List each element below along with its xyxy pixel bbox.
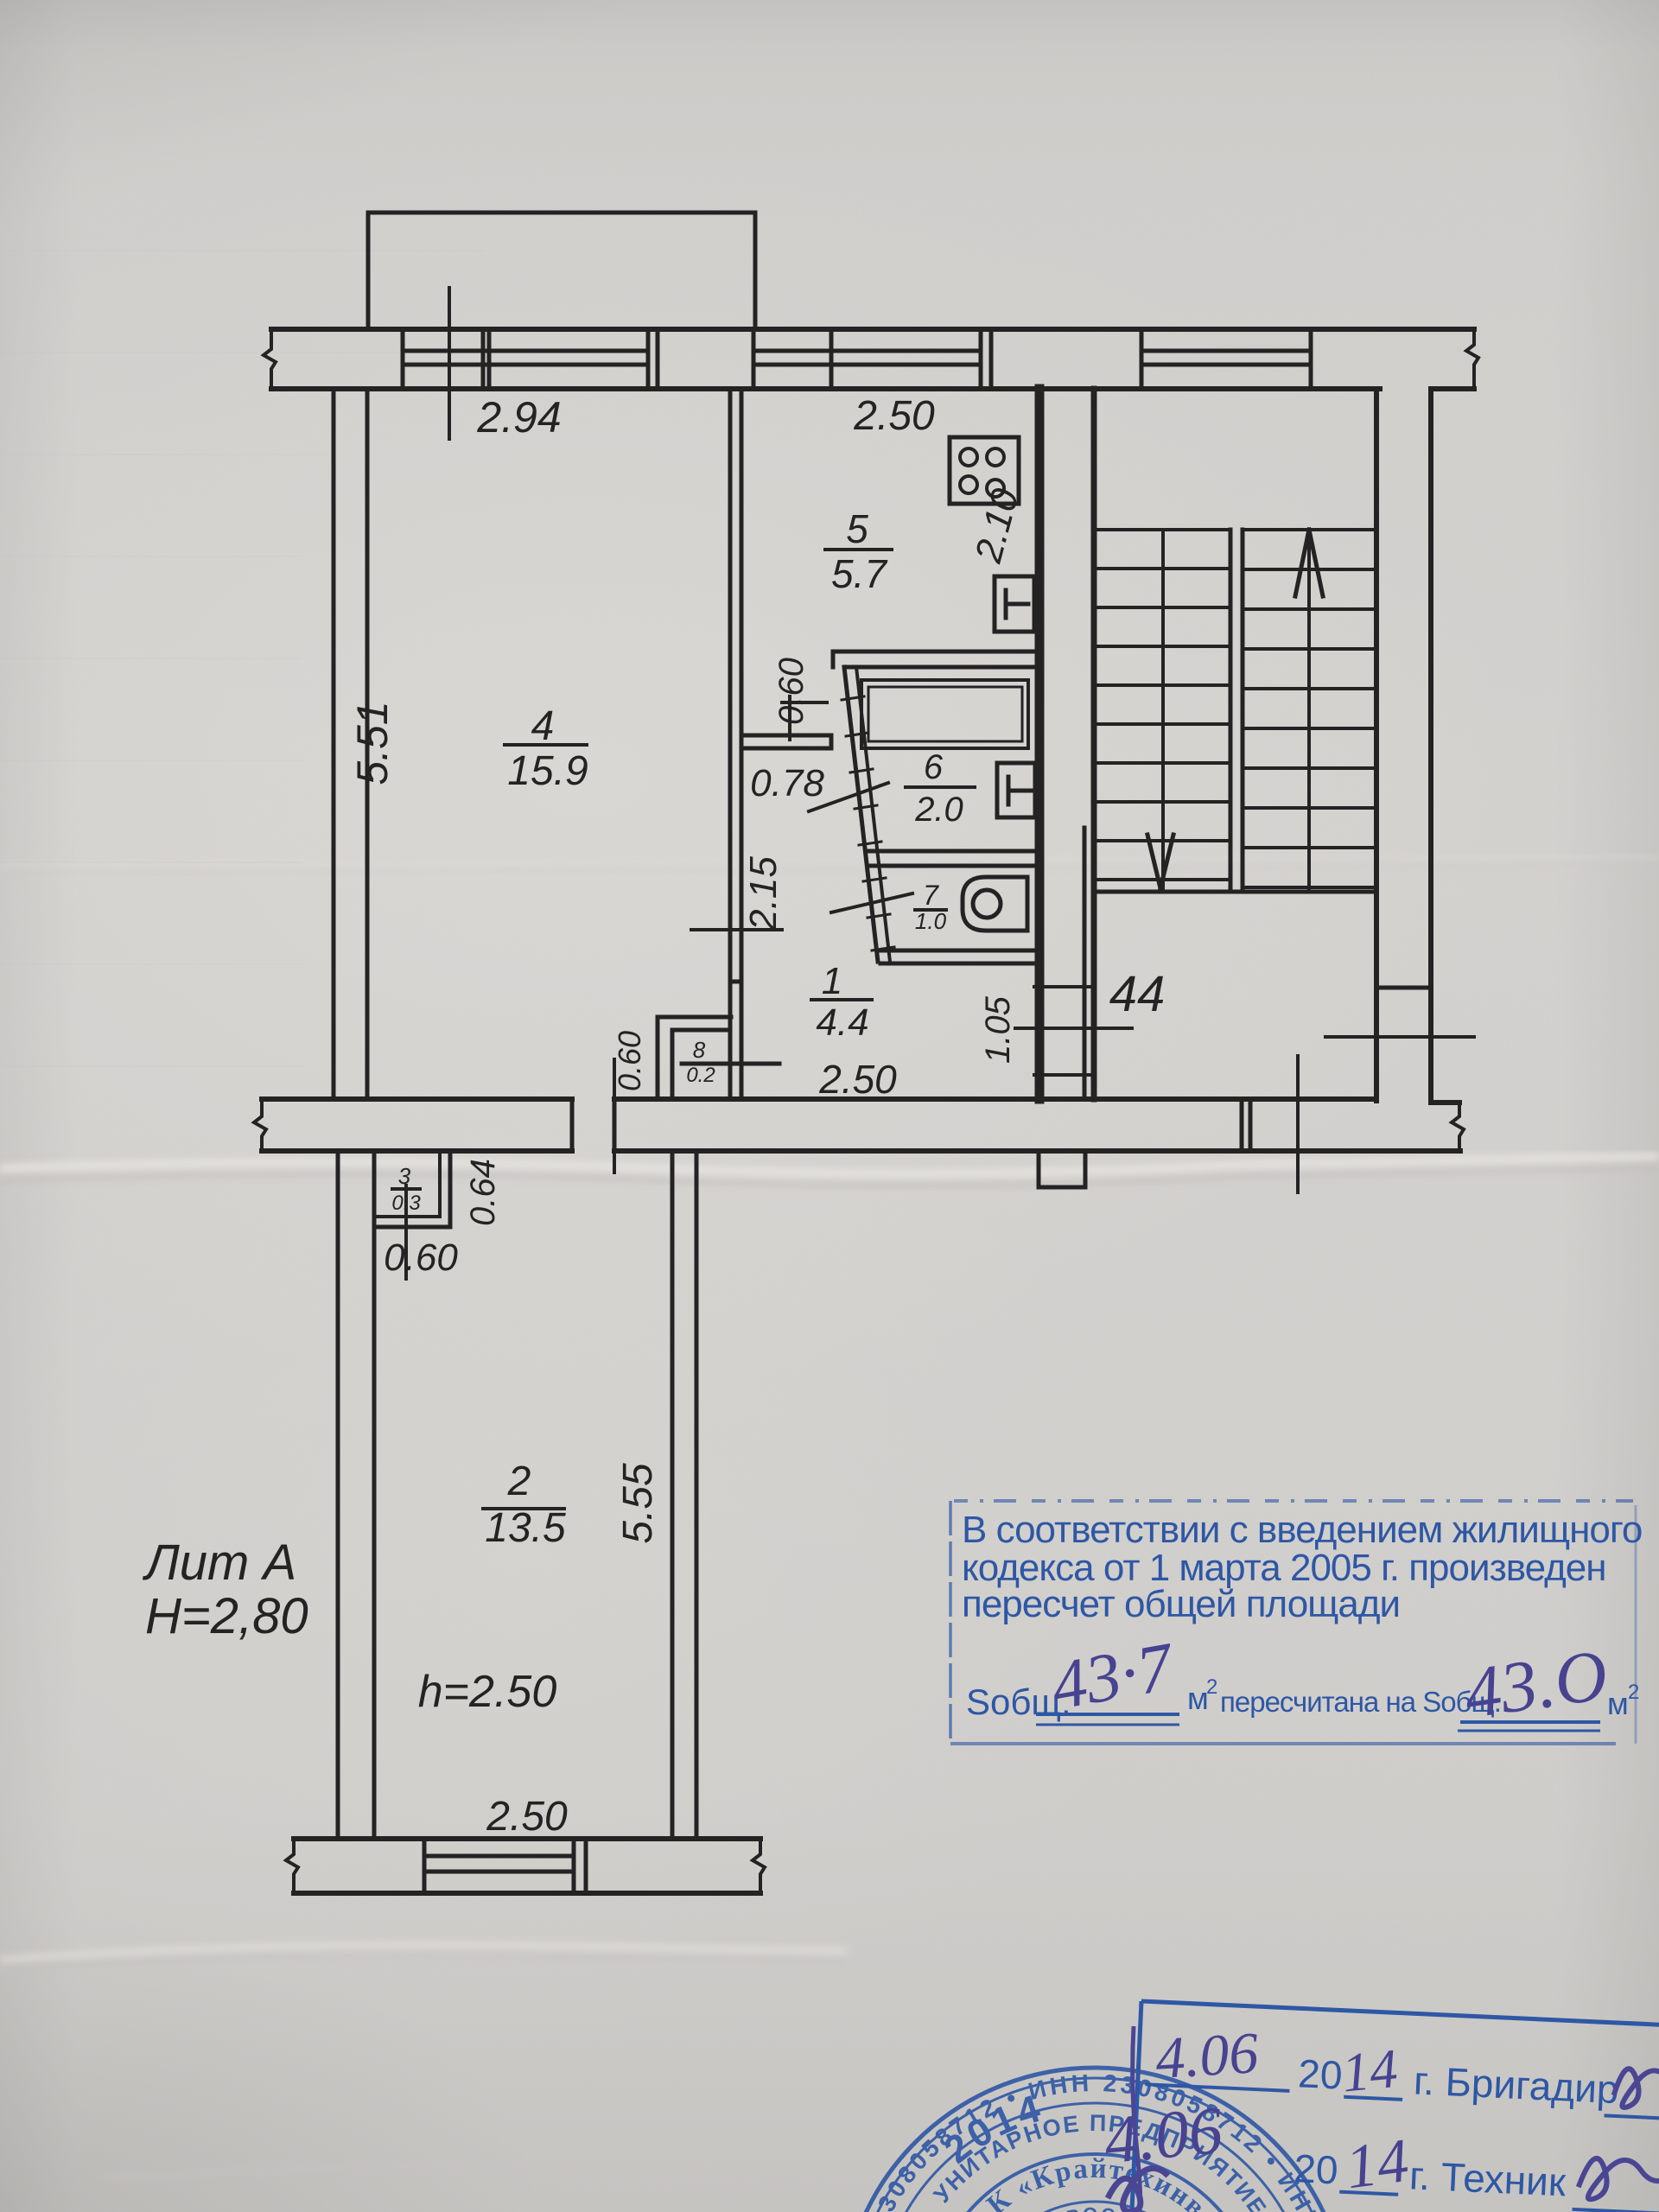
svg-text:5.51: 5.51 [348, 701, 397, 785]
svg-text:Лит А: Лит А [142, 1535, 296, 1591]
svg-text:5.55: 5.55 [615, 1463, 661, 1544]
svg-text:пересчитана на Sобщ.: пересчитана на Sобщ. [1220, 1686, 1501, 1718]
svg-text:0.64: 0.64 [464, 1159, 502, 1226]
svg-text:4.4: 4.4 [816, 1001, 868, 1044]
svg-text:2.50: 2.50 [486, 1794, 568, 1840]
svg-text:H=2,80: H=2,80 [145, 1588, 308, 1644]
svg-text:5.7: 5.7 [831, 551, 887, 596]
svg-text:7: 7 [923, 880, 939, 911]
svg-text:4.06: 4.06 [1101, 2092, 1225, 2177]
svg-text:2.94: 2.94 [476, 393, 561, 442]
svg-text:1: 1 [822, 960, 842, 1002]
svg-text:пересчет общей площади: пересчет общей площади [962, 1583, 1400, 1625]
svg-text:44: 44 [1109, 966, 1166, 1022]
svg-text:2: 2 [507, 1459, 531, 1504]
svg-text:1.05: 1.05 [979, 995, 1017, 1064]
svg-text:3: 3 [398, 1163, 411, 1189]
svg-text:20: 20 [1293, 2145, 1338, 2192]
svg-text:1.0: 1.0 [915, 908, 947, 934]
svg-text:г. Бригадир: г. Бригадир [1413, 2057, 1620, 2112]
svg-text:14: 14 [1339, 2037, 1400, 2104]
svg-text:14: 14 [1342, 2126, 1413, 2202]
svg-text:6: 6 [924, 748, 944, 786]
svg-text:2: 2 [1628, 1681, 1639, 1704]
svg-text:8: 8 [693, 1037, 706, 1063]
svg-text:h=2.50: h=2.50 [418, 1667, 557, 1717]
svg-text:0.60: 0.60 [612, 1031, 647, 1091]
svg-text:В соответствии с введением жил: В соответствии с введением жилищного [962, 1509, 1642, 1551]
svg-text:0.2: 0.2 [686, 1064, 715, 1087]
svg-text:0.78: 0.78 [750, 762, 824, 804]
svg-text:2.0: 2.0 [914, 791, 963, 829]
svg-text:0.60: 0.60 [772, 658, 810, 725]
svg-text:20: 20 [1297, 2050, 1343, 2097]
svg-text:2.50: 2.50 [853, 393, 935, 439]
svg-text:г. Техник: г. Техник [1408, 2152, 1567, 2204]
svg-text:15.9: 15.9 [507, 748, 588, 794]
svg-text:13.5: 13.5 [485, 1505, 566, 1551]
svg-text:0.60: 0.60 [384, 1236, 458, 1279]
svg-text:0.3: 0.3 [391, 1192, 421, 1215]
svg-text:2.15: 2.15 [742, 856, 785, 931]
svg-text:2.50: 2.50 [818, 1057, 897, 1102]
svg-text:4.06: 4.06 [1154, 2019, 1260, 2091]
svg-text:4: 4 [531, 703, 555, 749]
svg-text:5: 5 [846, 506, 868, 551]
svg-text:2: 2 [1206, 1675, 1217, 1699]
